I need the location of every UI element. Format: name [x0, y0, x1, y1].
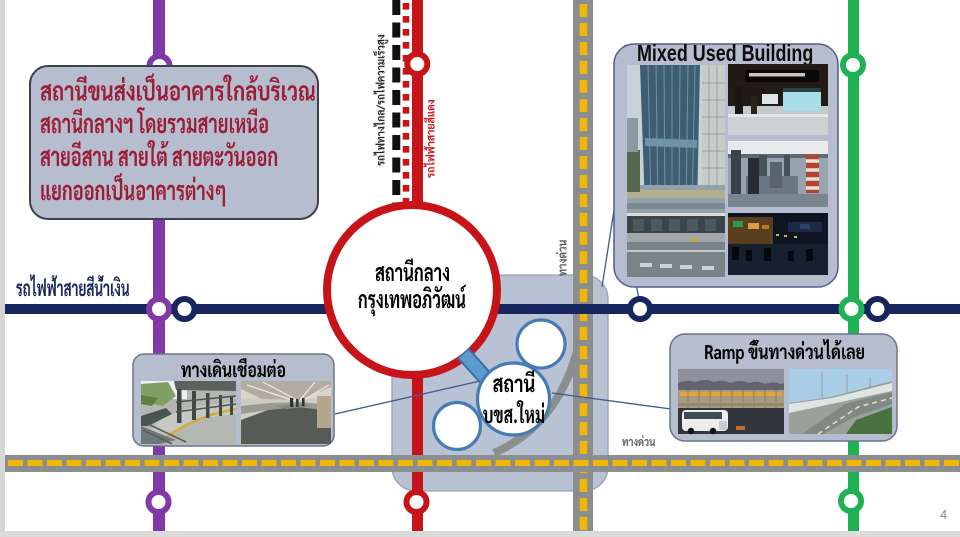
svg-text:Mixed Used Building: Mixed Used Building — [637, 41, 813, 67]
svg-text:4: 4 — [940, 507, 947, 522]
